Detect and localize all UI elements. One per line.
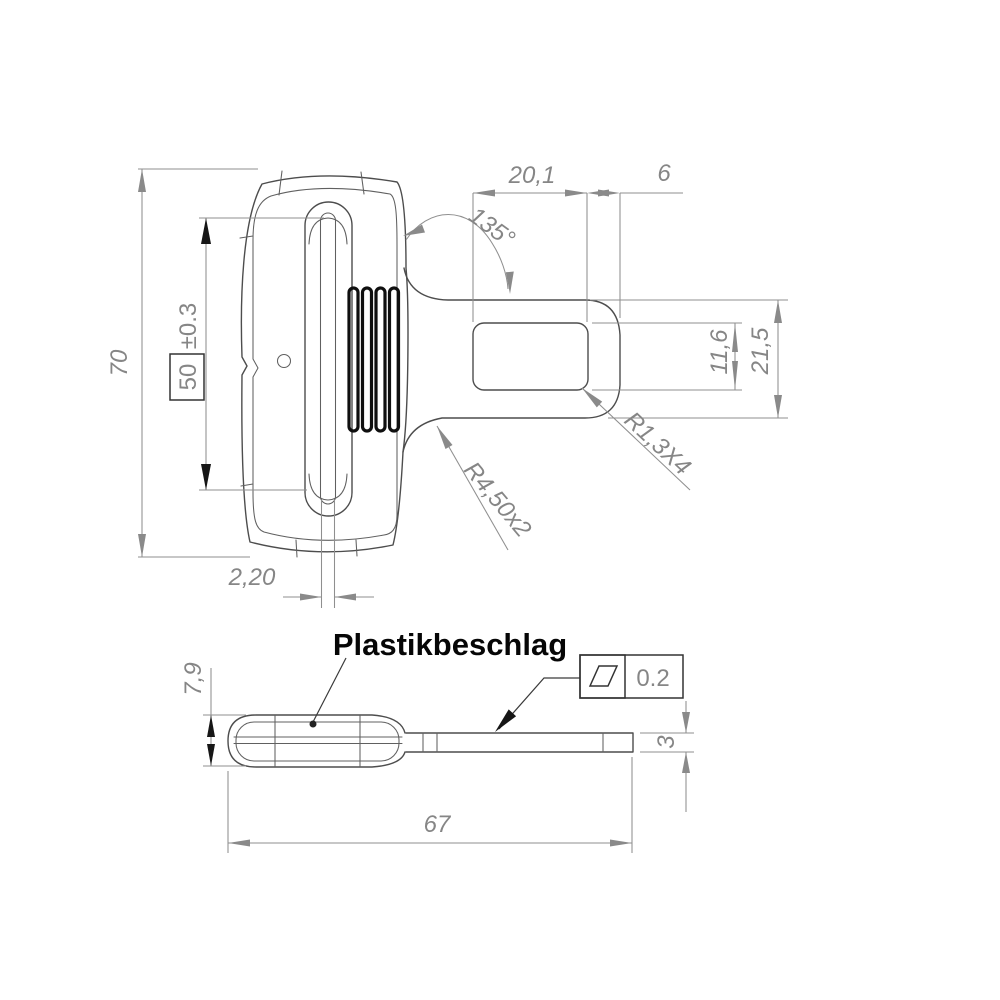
webbing-slot-inner — [321, 213, 336, 504]
dim-tongue-height-label: 21,5 — [747, 327, 774, 375]
plastic-body-inner-outline — [236, 722, 399, 761]
grip-rib — [390, 288, 399, 431]
technical-drawing-canvas: 70 50 ±0.3 2,20 20,1 — [0, 0, 1000, 1000]
dim-overall-height: 70 — [106, 169, 258, 557]
surface-finish-callout: 0.2 — [495, 655, 683, 732]
webbing-slot-dome-detail — [309, 218, 347, 500]
dim-plate-thickness: 3 — [640, 701, 694, 812]
part-name-callout: Plastikbeschlag — [310, 627, 568, 728]
dim-tongue-slot-width-label: 20,1 — [508, 162, 556, 189]
label-neck-fillet-radius-text: R4,50x2 — [458, 457, 536, 543]
dim-neck-angle: 135° — [403, 202, 520, 294]
grip-rib — [349, 288, 358, 431]
buckle-body-outer-outline — [241, 176, 408, 552]
label-slot-corner-radius: R1,3X4 — [582, 388, 696, 490]
grip-rib — [363, 288, 372, 431]
dim-neck-angle-label: 135° — [464, 202, 520, 253]
surface-finish-symbol-cell — [580, 655, 625, 698]
part-name-label: Plastikbeschlag — [333, 627, 567, 662]
front-view-dimensions: 70 50 ±0.3 2,20 20,1 — [106, 160, 788, 608]
grip-ribs — [349, 288, 399, 431]
surface-finish-value: 0.2 — [636, 665, 669, 692]
dim-latch-slot-height: 11,6 — [592, 323, 742, 390]
front-view — [240, 171, 620, 557]
grip-rib — [376, 288, 385, 431]
pin-hole — [278, 355, 291, 368]
plastic-body-outer-outline — [228, 715, 405, 767]
dim-slot-height-label: 50 — [175, 364, 202, 391]
dim-overall-height-label: 70 — [106, 349, 133, 376]
plastic-body-section-lines — [234, 716, 402, 766]
dim-slot-height-tolerance-label: ±0.3 — [175, 303, 202, 350]
dim-latch-slot-height-label: 11,6 — [706, 329, 733, 375]
technical-drawing-page: 70 50 ±0.3 2,20 20,1 — [0, 0, 1000, 1000]
outline-tick-marks — [240, 171, 364, 557]
dim-slot-width-label: 2,20 — [228, 564, 276, 591]
leader-dot — [310, 721, 317, 728]
dim-overall-length-label: 67 — [424, 811, 452, 838]
dim-tip-width: 6 — [587, 160, 683, 318]
dim-body-thickness: 7,9 — [180, 662, 246, 766]
dim-plate-thickness-label: 3 — [653, 735, 680, 749]
metal-plate-outline — [406, 733, 633, 752]
metal-plate-tick-lines — [423, 733, 603, 752]
dim-overall-length: 67 — [228, 757, 632, 853]
dim-slot-height: 50 ±0.3 — [170, 218, 324, 490]
dim-slot-width: 2,20 — [228, 500, 374, 608]
webbing-slot-outer — [305, 202, 352, 516]
dim-tip-width-label: 6 — [657, 160, 671, 187]
label-neck-fillet-radius: R4,50x2 — [437, 426, 536, 550]
side-view — [228, 715, 633, 767]
flatness-symbol-icon — [590, 666, 617, 686]
dim-body-thickness-label: 7,9 — [180, 662, 207, 695]
tongue-latch-slot — [473, 323, 588, 390]
